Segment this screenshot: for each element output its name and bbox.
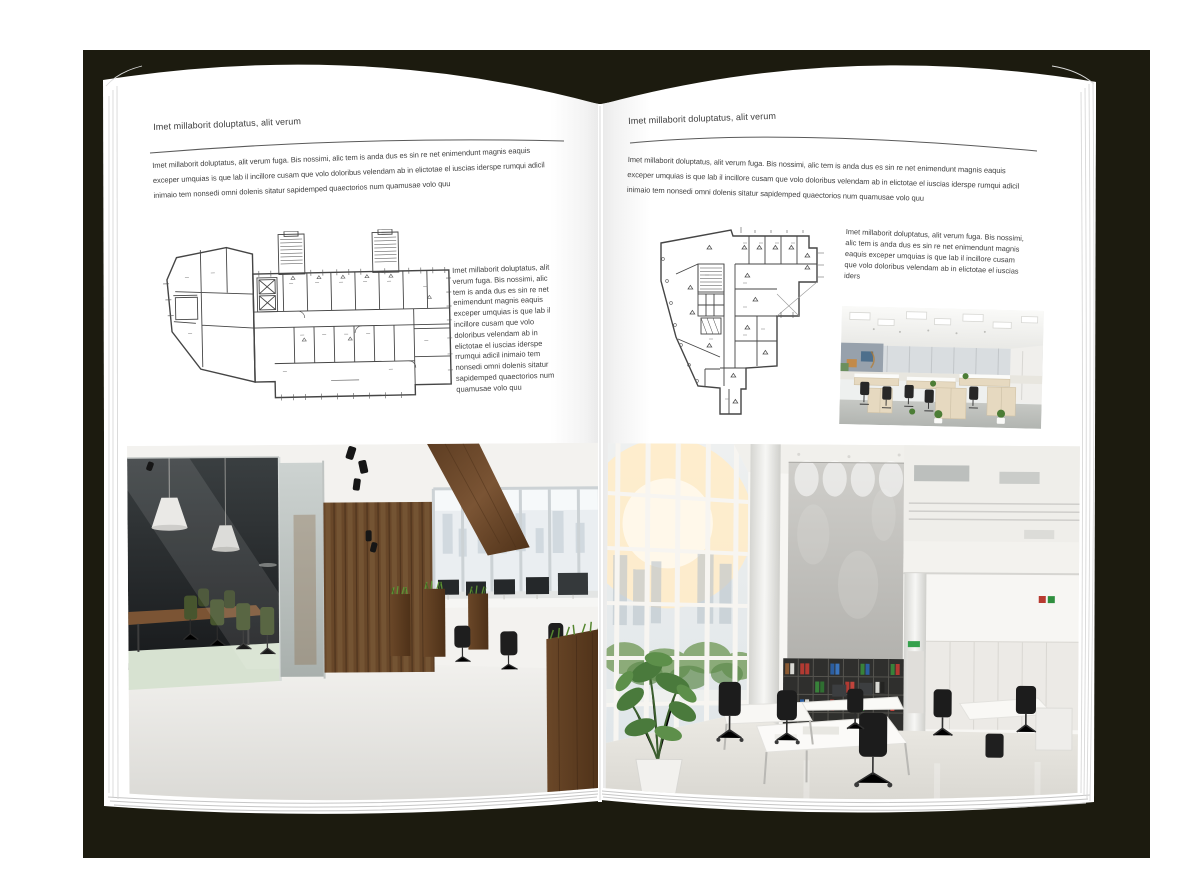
loft-scene [127,443,603,806]
left-page: Imet millaborit doluptatus, alit verum I… [103,44,600,814]
right-page-title: Imet millaborit doluptatus, alit verum [628,111,776,126]
floor-plan-left [160,228,454,410]
openplan-scene [839,306,1044,429]
left-intro-paragraph: Imet millaborit doluptatus, alit verum f… [152,142,555,203]
right-intro-paragraph: Imet millaborit doluptatus, alit verum f… [627,152,1030,209]
right-side-paragraph: Imet millaborit doluptatus, alit verum f… [844,226,1026,288]
floor-plan-right-drawing [645,218,838,420]
left-page-title: Imet millaborit doluptatus, alit verum [153,116,301,132]
left-side-paragraph: Imet millaborit doluptatus, alit verum f… [452,262,562,395]
office-photo-dark-loft [127,443,603,806]
atrium-scene [605,443,1080,806]
office-photo-white-atrium [605,443,1080,806]
floor-plan-left-drawing [160,228,454,410]
brochure-spread-mockup: Imet millaborit doluptatus, alit verum I… [0,0,1200,891]
floor-plan-right [645,218,838,420]
office-photo-small-openplan [839,306,1044,429]
right-page: Imet millaborit doluptatus, alit verum I… [600,44,1098,814]
